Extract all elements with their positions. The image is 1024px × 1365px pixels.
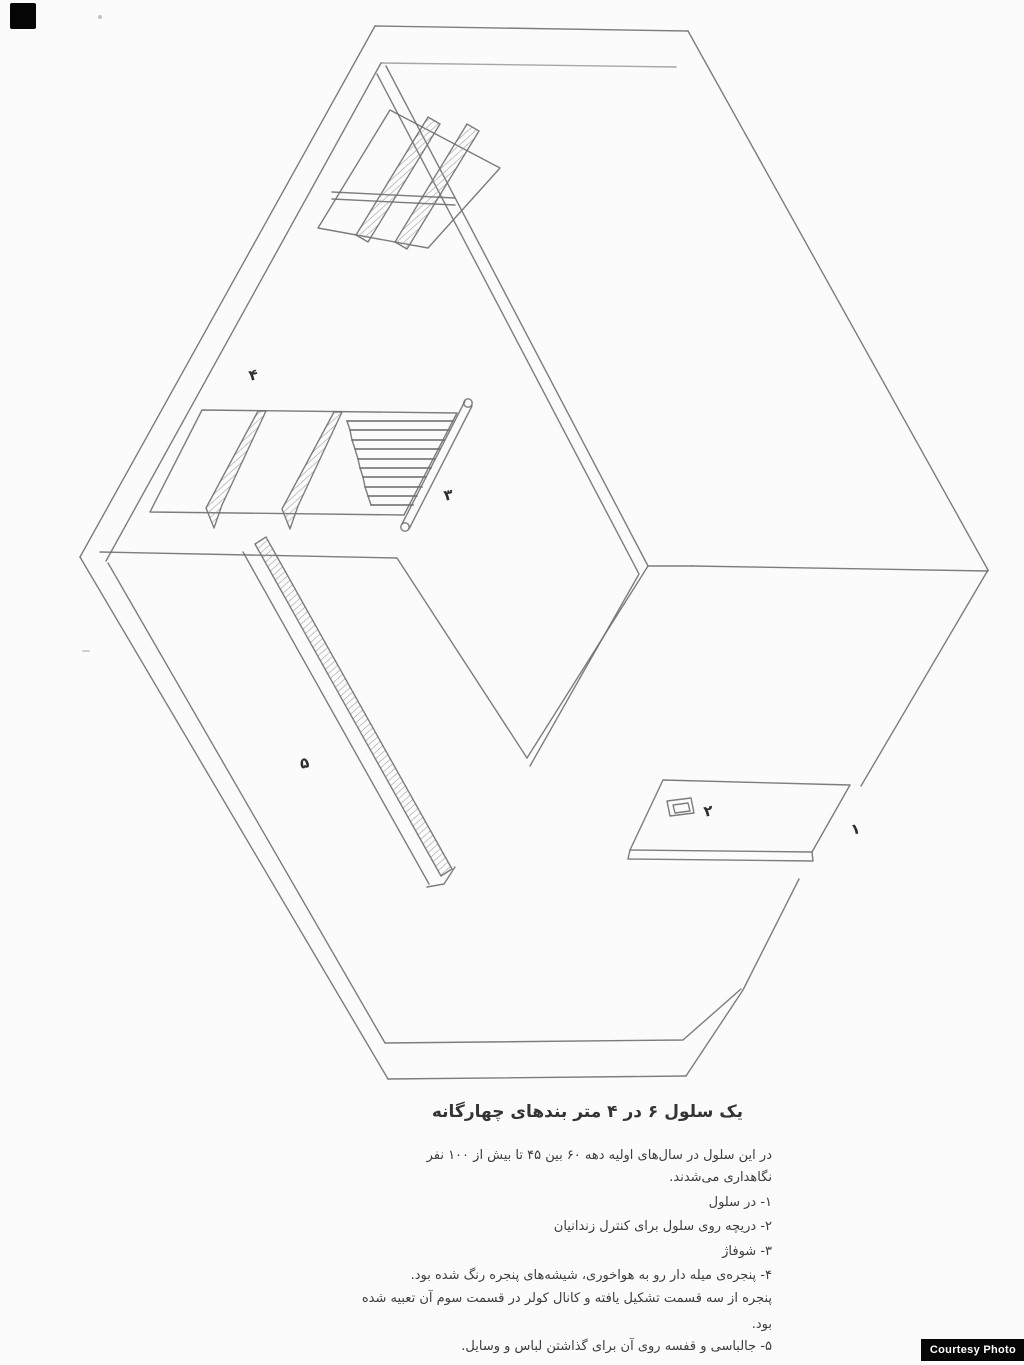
inner-top-edge xyxy=(381,63,676,67)
photo-credit-badge: Courtesy Photo xyxy=(921,1339,1024,1361)
caption-line: در این سلول در سال‌های اولیه دهه ۶۰ بین … xyxy=(427,1149,772,1164)
cell-diagram-drawing xyxy=(0,0,1024,1085)
cell-door xyxy=(630,780,850,852)
figure-title: یک سلول ۶ در ۴ متر بندهای چهارگانه xyxy=(432,1102,743,1122)
window-frame xyxy=(150,410,457,515)
radiator-tubes xyxy=(347,421,453,505)
outer-lower-right-edge xyxy=(686,570,988,1076)
upper-window-bar xyxy=(395,124,479,249)
outer-lower-left-edge xyxy=(80,557,388,1079)
caption-line: نگاهداری می‌شدند. xyxy=(669,1171,772,1186)
inner-bottom-edge xyxy=(385,989,741,1043)
right-face-divider xyxy=(692,566,988,571)
caption-item-3: ۳- شوفاژ xyxy=(722,1245,772,1260)
shelf-lower-line xyxy=(243,552,429,884)
radiator-left-edge xyxy=(347,421,371,505)
inner-upper-left-edge xyxy=(106,63,381,561)
door-hatch-inner xyxy=(673,803,690,813)
window-divider xyxy=(282,412,342,529)
caption-item-5: ۵- جالباسی و قفسه روی آن برای گذاشتن لبا… xyxy=(461,1340,772,1355)
caption-item-4-cont: پنجره از سه قسمت تشکیل یافته و کانال کول… xyxy=(362,1292,772,1307)
riser-cap-top xyxy=(464,399,472,407)
inner-lower-left-edge xyxy=(108,563,385,1043)
caption-item-2: ۲- دریچه روی سلول برای کنترل زندانیان xyxy=(554,1220,772,1235)
near-left-wall-top xyxy=(100,552,527,758)
door-hatch xyxy=(667,798,694,816)
outer-upper-right-edge xyxy=(688,31,988,570)
outer-top-edge xyxy=(375,26,688,31)
caption-item-4: ۴- پنجره‌ی میله دار رو به هواخوری، شیشه‌… xyxy=(411,1269,772,1284)
outer-bottom-edge xyxy=(388,1076,686,1079)
window-divider xyxy=(206,411,266,528)
shelf-band xyxy=(255,537,452,876)
upper-window-bar xyxy=(356,117,440,242)
photo-page: ۴ ۳ ۵ ۲ ۱ یک سلول ۶ در ۴ متر بندهای چهار… xyxy=(0,0,1024,1365)
caption-item-4-end: بود. xyxy=(752,1318,772,1333)
riser-cap-bottom xyxy=(401,523,409,531)
cell-diagram: ۴ ۳ ۵ ۲ ۱ xyxy=(0,0,1024,1085)
inner-right-wall-edge-2 xyxy=(377,74,639,766)
caption-item-1: ۱- در سلول xyxy=(709,1196,772,1211)
